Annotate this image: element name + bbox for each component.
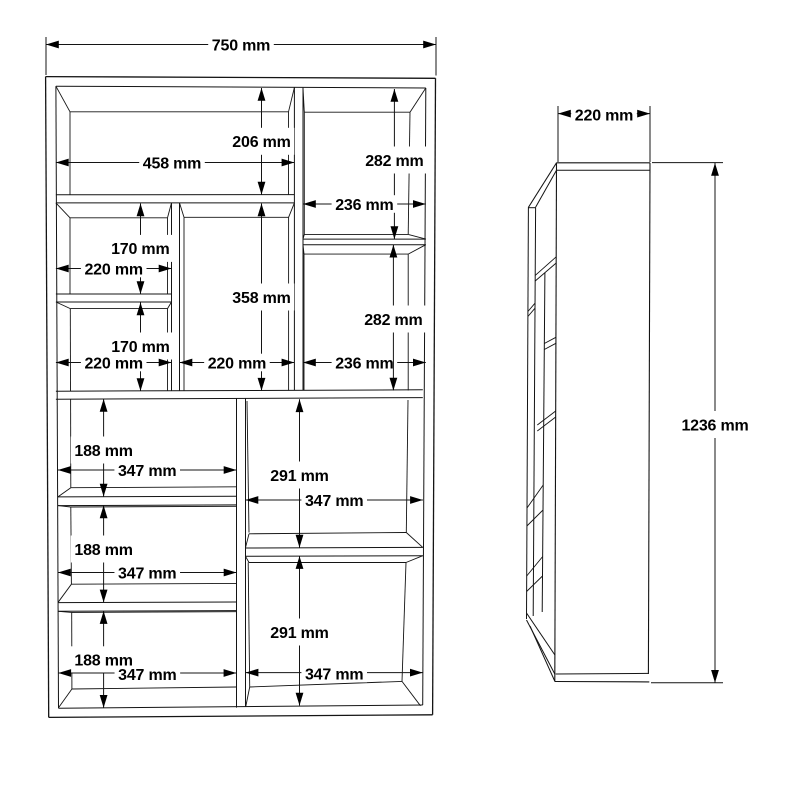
svg-text:458 mm: 458 mm bbox=[143, 155, 201, 172]
svg-text:347 mm: 347 mm bbox=[305, 493, 363, 510]
svg-text:188 mm: 188 mm bbox=[74, 542, 132, 559]
svg-text:220 mm: 220 mm bbox=[84, 355, 142, 372]
svg-text:358 mm: 358 mm bbox=[232, 290, 290, 307]
svg-text:347 mm: 347 mm bbox=[305, 666, 363, 683]
svg-text:1236 mm: 1236 mm bbox=[681, 417, 748, 434]
svg-text:750 mm: 750 mm bbox=[212, 37, 270, 54]
svg-text:206 mm: 206 mm bbox=[232, 134, 290, 151]
svg-text:291 mm: 291 mm bbox=[270, 468, 328, 485]
svg-text:347 mm: 347 mm bbox=[118, 565, 176, 582]
svg-text:282 mm: 282 mm bbox=[364, 312, 422, 329]
svg-text:347 mm: 347 mm bbox=[118, 463, 176, 480]
svg-text:220 mm: 220 mm bbox=[84, 261, 142, 278]
svg-text:220 mm: 220 mm bbox=[208, 355, 266, 372]
svg-text:170 mm: 170 mm bbox=[111, 241, 169, 258]
svg-text:188 mm: 188 mm bbox=[74, 443, 132, 460]
svg-text:282 mm: 282 mm bbox=[365, 153, 423, 170]
svg-text:170 mm: 170 mm bbox=[111, 339, 169, 356]
svg-text:236 mm: 236 mm bbox=[335, 197, 393, 214]
svg-text:347 mm: 347 mm bbox=[118, 667, 176, 684]
svg-text:220 mm: 220 mm bbox=[575, 108, 633, 125]
svg-text:236 mm: 236 mm bbox=[335, 355, 393, 372]
svg-text:291 mm: 291 mm bbox=[270, 625, 328, 642]
